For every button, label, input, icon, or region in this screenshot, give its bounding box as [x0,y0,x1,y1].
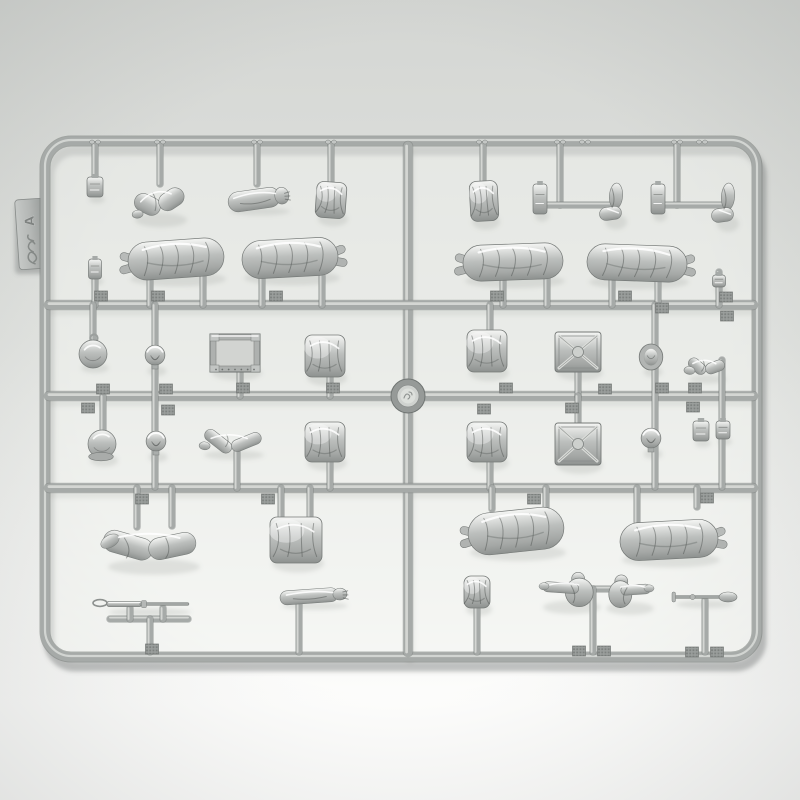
folded-tent-part [466,422,507,462]
sprue-photo-stage: Photograph of a gray injection-molded po… [0,0,800,800]
gate-tab [162,405,175,415]
gate-tab [95,291,108,301]
pouch-part [463,576,490,608]
ammo-crate-open-part [210,334,260,372]
boot-pair-part [693,418,709,441]
folded-coat-part [304,422,345,462]
gate-tab [136,494,149,504]
sprue-photo: A [0,0,800,800]
gate-tab [237,383,250,393]
gate-tab [270,291,283,301]
gate-tab [711,647,724,657]
folded-trousers-part [269,517,322,563]
small-pistol-part-part [89,256,102,279]
boot-pair-part [716,418,730,439]
gate-tab [619,291,632,301]
gate-tab [327,383,340,393]
gate-tab [152,291,165,301]
ammo-box-lid-cross-part [555,423,601,465]
gate-tab [82,403,95,413]
gate-tab [701,493,714,503]
gate-tab [262,494,275,504]
gate-tab [97,384,110,394]
ammo-box-lid-cross-part [555,332,601,372]
hand-part-part [533,181,547,214]
gate-tab [573,646,586,656]
gate-tab [160,384,173,394]
gate-tab [599,384,612,394]
gate-tab [656,303,669,313]
gate-tab [491,291,504,301]
gate-tab [500,383,513,393]
mess-tin-part [88,430,116,461]
head-in-oval-part [639,344,663,370]
gate-tab [528,494,541,504]
hand-part-part [651,181,665,214]
gate-tab [478,404,491,414]
folded-cap-part [314,181,347,219]
gate-tab [689,383,702,393]
folded-coat-part [304,335,345,377]
gate-tab [598,646,611,656]
gate-tab [686,647,699,657]
folded-tent-part [466,330,507,372]
gate-tab [146,644,159,654]
small-hand-part-part [87,174,103,197]
gate-tab [720,292,733,302]
gate-tab [566,403,579,413]
centre-boss [391,379,425,413]
gate-tab [656,383,669,393]
gate-tab [687,402,700,412]
folded-collar-part [468,180,499,221]
gate-tab [721,311,734,321]
sprue-letter: A [23,215,39,226]
